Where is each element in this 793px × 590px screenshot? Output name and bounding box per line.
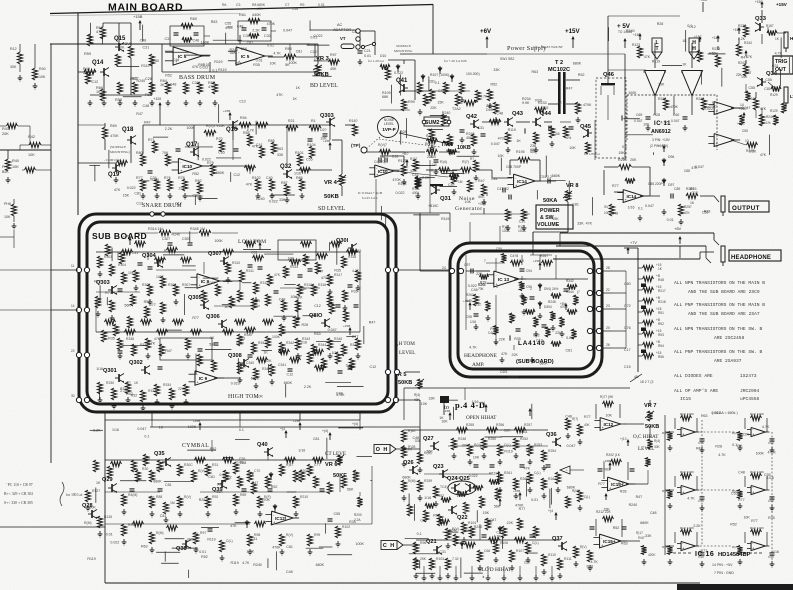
svg-text:100K: 100K [214,239,223,243]
svg-text:C H: C H [383,543,395,549]
svg-text:R28: R28 [620,490,627,494]
svg-text:ALL PNP TRANSISTORS ON THE SW.: ALL PNP TRANSISTORS ON THE SW. B [674,349,762,355]
svg-text:R?: R? [470,157,474,161]
svg-text:30K: 30K [10,65,17,69]
svg-text:+15C: +15C [733,28,741,32]
svg-text:7.32: 7.32 [452,557,459,561]
svg-text:18 2 7 (3: 18 2 7 (3 [640,380,653,384]
svg-text:+)4: +)4 [548,509,553,513]
svg-text:R101: R101 [295,151,304,155]
svg-text:Q303: Q303 [320,113,334,119]
svg-text:C55: C55 [731,492,738,496]
svg-text:4: 4 [496,285,498,289]
svg-text:+(6 ~ SPKES WOUNF: +(6 ~ SPKES WOUNF [533,45,563,49]
svg-text:+15C: +15C [694,35,702,39]
svg-text:33K: 33K [277,153,284,157]
svg-text:+15B: +15B [463,299,470,303]
svg-text:C48: C48 [172,58,179,62]
svg-text:R250: R250 [488,437,496,441]
svg-text:6: 6 [664,70,666,74]
svg-text:4.7K: 4.7K [352,269,360,273]
svg-text:R82: R82 [195,179,202,183]
svg-text:S+< 330 + CR 305: S+< 330 + CR 305 [4,501,33,505]
svg-text:C81: C81 [192,194,199,198]
svg-text:0.1: 0.1 [732,443,737,447]
svg-text:1/16: 1/16 [767,476,774,480]
svg-text:C12: C12 [310,50,317,54]
svg-text:1M: 1M [458,180,463,184]
svg-text:4.7K: 4.7K [480,95,488,99]
svg-text:C66: C66 [484,549,490,553]
svg-text:C99: C99 [496,247,502,251]
svg-text:Q308: Q308 [228,353,242,359]
svg-text:R264: R264 [548,477,556,481]
svg-text:10K: 10K [465,200,472,204]
svg-text:R257: R257 [524,423,532,427]
svg-text:22K: 22K [743,432,750,436]
svg-text:1K: 1K [682,39,687,43]
svg-text:IC12: IC12 [604,422,614,427]
svg-text:100K: 100K [628,91,637,95]
svg-text:R)7): R)7) [572,417,578,421]
svg-text:4.7K: 4.7K [273,52,281,56]
svg-text:C31: C31 [143,45,150,49]
svg-text:R63: R63 [314,332,321,336]
svg-text:+15B: +15B [533,259,540,263]
svg-text:C31: C31 [251,537,258,541]
svg-text:22K: 22K [524,561,531,565]
svg-text:R252: R252 [520,437,528,441]
svg-text:+15B: +15B [343,324,350,328]
svg-text:R119: R119 [504,449,512,453]
svg-text:C81: C81 [355,249,362,253]
svg-text:R77: R77 [295,354,302,358]
svg-text:R63: R63 [236,342,243,346]
svg-text:C55: C55 [748,86,755,90]
svg-text:C40: C40 [266,176,273,180]
svg-text:B+< 329 + CR 302: B+< 329 + CR 302 [4,492,33,496]
svg-text:Q27: Q27 [423,436,434,442]
svg-text:100K: 100K [272,335,281,339]
svg-text:PH6: PH6 [4,202,11,206]
svg-text:47K: 47K [586,221,593,225]
svg-text:C81: C81 [286,545,293,549]
svg-text:47K: 47K [114,188,121,192]
svg-text:C99: C99 [768,441,774,445]
svg-text:C305: C305 [182,237,190,241]
svg-text:C(L): C(L) [584,495,590,499]
svg-text:(SURFACE: (SURFACE [110,145,126,149]
svg-text:R248: R248 [548,300,556,304]
svg-text:R87: R87 [281,181,288,185]
svg-text:TC4): TC4) [440,485,448,489]
svg-text:1K: 1K [96,481,101,485]
svg-text:1/16: 1/16 [472,400,479,404]
svg-text:+)4: +)4 [280,427,285,431]
svg-text:20: 20 [606,326,610,330]
svg-text:9.9K: 9.9K [522,101,530,105]
svg-text:R126: R126 [104,515,112,519]
svg-text:470K: 470K [272,546,281,550]
svg-text:47K: 47K [760,153,767,157]
svg-text:C55: C55 [702,210,709,214]
svg-text:47K: 47K [760,107,767,111]
svg-text:R69: R69 [110,124,117,128]
svg-text:15K: 15K [483,511,490,515]
svg-text:R80: R80 [136,151,143,155]
svg-text:C48: C48 [192,39,199,43]
svg-text:10K: 10K [441,420,448,424]
svg-text:Q304: Q304 [142,253,157,259]
svg-text:R52: R52 [271,485,278,489]
svg-text:SURFACE: SURFACE [396,44,411,48]
svg-text:R28: R28 [199,498,206,502]
svg-text:R311: R311 [246,269,254,273]
svg-text:R63: R63 [238,336,245,340]
svg-text:56K: 56K [118,45,125,49]
svg-text:47K: 47K [691,166,698,170]
svg-text:8: 8 [522,259,524,263]
svg-text:40K: 40K [584,423,591,427]
svg-text:R)2) 100K: R)2) 100K [750,412,765,416]
svg-text:R118: R118 [398,182,406,186]
svg-text:C31: C31 [480,445,487,449]
svg-text:R40: R40 [12,159,19,163]
svg-text:0.022: 0.022 [313,34,322,38]
svg-text:Q14: Q14 [92,60,104,66]
svg-text:0.01: 0.01 [531,498,538,502]
svg-text:Q29: Q29 [102,477,113,483]
svg-text:R119: R119 [441,217,449,221]
svg-text:0.047: 0.047 [207,281,216,285]
svg-text:C31: C31 [519,219,526,223]
svg-text:R240: R240 [256,197,265,201]
svg-text:0.047: 0.047 [645,204,654,208]
svg-text:Q305: Q305 [188,295,202,301]
svg-text:1K: 1K [126,380,131,384]
svg-text:uPC4558: uPC4558 [740,396,760,402]
svg-text:R77: R77 [132,77,139,81]
svg-text:+)4): +)4) [352,422,358,426]
svg-text:C81: C81 [165,483,172,487]
svg-text:470K: 470K [498,137,507,141]
svg-text:24%: 24% [552,287,559,291]
svg-text:15K: 15K [658,82,665,86]
svg-text:R35: R35 [351,290,358,294]
svg-text:IC 13: IC 13 [498,277,509,282]
svg-text:VR 6: VR 6 [325,462,337,468]
svg-text:1K: 1K [159,426,164,430]
svg-text:56K: 56K [494,504,501,508]
svg-text:R52: R52 [613,526,620,530]
svg-text:15K: 15K [741,75,748,79]
svg-text:1K: 1K [263,350,268,354]
svg-text:47K: 47K [524,467,531,471]
svg-text:+15C: +15C [755,0,763,4]
svg-text:20K: 20K [630,158,637,162]
svg-text:R12: R12 [10,47,17,51]
svg-text:R342: R342 [286,341,294,345]
svg-text:1K: 1K [224,305,229,309]
svg-text:C88 220P: C88 220P [648,182,663,186]
svg-text:10K: 10K [12,165,19,169]
svg-text:H: H [692,46,696,52]
svg-text:R52: R52 [192,172,199,176]
svg-text:0.1: 0.1 [638,206,643,210]
svg-text:R117: R117 [410,157,418,161]
svg-text:Q302: Q302 [129,360,143,366]
svg-text:0.01: 0.01 [236,460,243,464]
svg-text:IC 9: IC 9 [199,376,208,381]
svg-text:4%: 4% [566,136,572,140]
svg-text:R)2) 100K: R)2) 100K [750,526,765,530]
svg-text:33K: 33K [645,534,652,538]
svg-text:C12: C12 [536,338,543,342]
svg-text:470K: 470K [262,498,271,502]
svg-text:0.047: 0.047 [328,328,337,332]
svg-text:R200: R200 [354,513,362,517]
svg-text:680K: 680K [573,62,582,66]
svg-text:680K: 680K [153,480,162,484]
svg-text:22K: 22K [476,272,483,276]
svg-text:D304: D304 [544,305,552,309]
svg-text:AN6912: AN6912 [651,129,671,135]
svg-text:56K: 56K [347,487,354,491]
svg-text:R(M): R(M) [84,521,92,525]
svg-text:AND THE SUB BOARD ARE 2SC9: AND THE SUB BOARD ARE 2SC9 [688,289,760,295]
svg-text:0.1: 0.1 [417,532,422,536]
svg-text:IC10: IC10 [378,169,388,174]
svg-text:(TP): (TP) [351,143,361,149]
svg-text:+15B: +15B [658,144,666,148]
svg-text:VR 8: VR 8 [566,183,578,189]
svg-text:1/16: 1/16 [298,449,305,453]
svg-text:C81: C81 [251,250,258,254]
svg-text:C12: C12 [233,173,240,177]
svg-text:R242: R242 [738,61,746,65]
svg-text:10K: 10K [743,516,750,520]
svg-text:47K: 47K [227,25,234,29]
svg-text:10K: 10K [569,146,576,150]
svg-text:R240: R240 [253,563,262,567]
svg-text:JRC2904: JRC2904 [740,388,760,394]
svg-text:R35: R35 [768,516,775,520]
svg-text:C70: C70 [254,469,260,473]
svg-text:R)2): R)2) [732,545,738,549]
svg-text:R47: R47 [636,495,643,499]
svg-text:0.1: 0.1 [435,81,440,85]
svg-text:R195: R195 [516,150,525,154]
svg-text:R)4): R)4) [654,439,660,443]
svg-text:1%: 1% [766,121,771,125]
svg-text:R119: R119 [207,537,215,541]
svg-text:R233: R233 [712,47,720,51]
svg-text:22K: 22K [178,387,185,391]
svg-text:100K: 100K [356,542,365,546]
svg-text:+8V: +8V [560,302,567,306]
svg-text:680K: 680K [316,563,325,567]
svg-text:R77: R77 [217,483,224,487]
svg-text:+)10: +)10 [620,437,627,441]
svg-text:50KB: 50KB [645,424,659,430]
svg-text:33K: 33K [493,68,500,72]
svg-text:15K: 15K [736,444,743,448]
svg-text:ALL OP AMP'S ARE: ALL OP AMP'S ARE [674,388,718,394]
svg-text:440K: 440K [252,13,261,17]
svg-text:IC 5: IC 5 [178,54,187,59]
svg-text:0.01: 0.01 [267,43,274,47]
svg-text:R341: R341 [258,341,266,345]
svg-text:R117: R117 [398,159,406,163]
svg-text:BD LEVEL: BD LEVEL [310,83,338,89]
svg-text:4.7K: 4.7K [718,453,726,457]
svg-text:for +-20 Lot D.B: for +-20 Lot D.B [444,59,467,63]
svg-text:R202 (1K: R202 (1K [606,453,621,457]
svg-text:R240: R240 [442,111,451,115]
svg-text:0.022: 0.022 [394,71,403,75]
svg-text:IC14: IC14 [517,179,527,184]
svg-text:C4): C4) [488,331,493,335]
svg-text:R117: R117 [426,134,434,138]
svg-text:C48: C48 [471,288,478,292]
svg-text:R30C: R30C [184,463,193,467]
svg-text:C81: C81 [160,514,167,518]
svg-text:R254: R254 [548,449,556,453]
svg-text:R77: R77 [519,507,526,511]
svg-text:PH1: PH1 [2,165,9,169]
svg-text:R77: R77 [105,291,112,295]
svg-text:470K: 470K [767,451,776,455]
svg-text:C48: C48 [170,83,177,87]
svg-text:R35: R35 [253,63,260,67]
svg-text:15K: 15K [618,151,625,155]
svg-text:C89: C89 [674,187,680,191]
svg-text:C55: C55 [334,512,341,516]
svg-text:22K: 22K [179,186,186,190]
svg-text:+15B: +15B [603,459,610,463]
svg-text:+15V: +15V [565,28,580,35]
svg-text:C76: C76 [624,326,631,330]
svg-text:22K: 22K [518,283,525,287]
svg-text:10K: 10K [473,456,480,460]
svg-text:470K: 470K [583,103,592,107]
svg-text:450K: 450K [466,136,475,140]
svg-text:R)40: R)40 [408,429,415,433]
svg-text:OUT: OUT [775,67,787,73]
svg-text:47K: 47K [192,532,199,536]
svg-text:R35: R35 [349,520,356,524]
svg-text:0.1: 0.1 [212,69,217,73]
svg-text:+15B: +15B [123,234,130,238]
svg-text:R107: R107 [516,549,524,553]
svg-text:R92: R92 [212,495,218,499]
svg-text:C(L): C(L) [504,443,511,447]
svg-text:C48: C48 [565,415,572,419]
svg-text:' PC 110 + CR 97: ' PC 110 + CR 97 [6,483,33,487]
svg-text:R28: R28 [653,113,660,117]
svg-text:ALL PNP TRANSISTORS ON THE MAI: ALL PNP TRANSISTORS ON THE MAIN B [674,302,765,308]
svg-text:C99: C99 [768,499,774,503]
svg-text:C31: C31 [521,430,528,434]
svg-text:VR 4: VR 4 [324,180,338,186]
svg-text:C81: C81 [572,203,579,207]
svg-text:CLO'D HIHAT: CLO'D HIHAT [478,567,512,573]
svg-text:R317: R317 [334,273,342,277]
svg-text:C99: C99 [698,441,704,445]
svg-text:R63: R63 [621,542,628,546]
svg-text:R63: R63 [211,20,218,24]
svg-text:1/16: 1/16 [300,341,307,345]
svg-text:4.7K: 4.7K [295,295,303,299]
svg-text:R35: R35 [108,337,115,341]
svg-text:D94): D94) [544,287,551,291]
svg-text:470K: 470K [392,178,401,182]
svg-text:R52: R52 [210,447,217,451]
svg-text:C48: C48 [738,470,745,474]
svg-text:14: 14 [428,128,432,132]
svg-text:R40: R40 [39,67,46,71]
svg-text:33K: 33K [429,397,436,401]
svg-text:R248: R248 [458,437,466,441]
svg-text:T: T [655,46,658,52]
svg-text:R63: R63 [141,544,148,548]
svg-text:2.2K: 2.2K [247,549,255,553]
svg-text:C4(370): C4(370) [374,160,386,164]
svg-text:R52: R52 [165,73,172,77]
svg-text:VOLUME: VOLUME [537,222,560,228]
svg-text:R34E 1M: R34E 1M [190,227,205,231]
svg-text:C31: C31 [439,550,446,554]
svg-text:C12: C12 [92,80,99,84]
svg-text:AMP.: AMP. [472,362,484,368]
svg-text:10K: 10K [269,62,276,66]
svg-text:R97: R97 [330,53,337,57]
svg-text:R119: R119 [508,128,516,132]
svg-text:680K: 680K [251,376,260,380]
svg-text:R119: R119 [218,68,226,72]
svg-text:R259: R259 [424,479,432,483]
svg-text:R85: R85 [268,139,275,143]
svg-text:2.2K: 2.2K [693,524,701,528]
svg-text:R35: R35 [514,337,521,341]
svg-text:+15B: +15B [133,14,143,19]
svg-text:47K: 47K [684,211,691,215]
svg-text:R77: R77 [136,176,143,180]
svg-text:C81: C81 [235,62,242,66]
svg-text:R89: R89 [240,493,246,497]
svg-text:LEVEL: LEVEL [399,350,415,356]
svg-text:AND THE SUB BOARD ARE 2SA7: AND THE SUB BOARD ARE 2SA7 [688,311,760,317]
svg-text:40C: 40C [478,195,485,199]
svg-text:0.047: 0.047 [567,444,576,448]
svg-text:R35: R35 [253,299,260,303]
svg-text:+B?: +B? [402,152,409,156]
svg-text:0.1: 0.1 [144,434,149,438]
svg-text:R51: R51 [658,311,664,315]
svg-text:C99: C99 [698,499,704,503]
svg-text:R(V): R(V) [198,469,205,473]
svg-text:C81: C81 [313,437,320,441]
svg-text:R)2) 100K: R)2) 100K [680,412,695,416]
svg-text:22K: 22K [499,337,506,341]
svg-text:R79: R79 [207,161,214,165]
svg-text:10KB: 10KB [457,145,471,151]
svg-text:R255: R255 [466,423,474,427]
svg-text:R52: R52 [730,523,737,527]
svg-text:R4?: R4? [478,179,485,183]
svg-text:OPEN HIHAT: OPEN HIHAT [466,415,497,421]
svg-text:C69: C69 [636,113,642,117]
